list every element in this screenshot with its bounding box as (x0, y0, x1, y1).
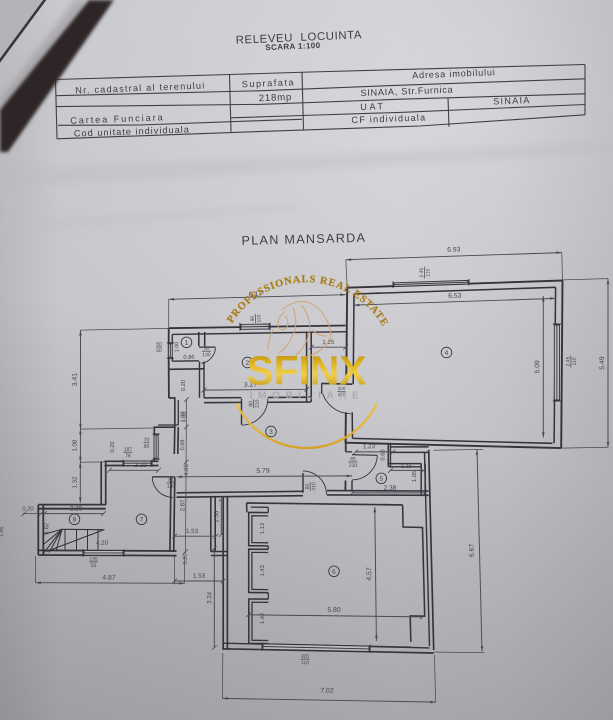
svg-text:76: 76 (125, 453, 131, 459)
svg-text:5.09: 5.09 (534, 360, 541, 374)
svg-text:218mp: 218mp (259, 92, 293, 104)
svg-text:0.68: 0.68 (380, 449, 386, 460)
svg-text:1.96: 1.96 (0, 527, 5, 538)
svg-text:110: 110 (301, 660, 309, 666)
svg-text:1.00: 1.00 (174, 342, 180, 353)
svg-text:5.80: 5.80 (327, 607, 341, 614)
svg-text:50: 50 (156, 348, 162, 354)
svg-text:1.00: 1.00 (180, 412, 186, 423)
svg-text:1.53: 1.53 (193, 573, 206, 580)
svg-text:210: 210 (311, 482, 317, 491)
svg-text:2.87: 2.87 (180, 499, 186, 511)
svg-text:Cod unitate individuala: Cod unitate individuala (74, 124, 190, 138)
svg-text:80: 80 (144, 444, 150, 450)
svg-text:55: 55 (91, 563, 97, 569)
svg-text:Suprafata: Suprafata (242, 77, 296, 89)
svg-text:130: 130 (202, 352, 211, 358)
svg-text:SINAIA: SINAIA (493, 95, 531, 106)
svg-text:0.20: 0.20 (22, 506, 33, 512)
svg-text:Adresa imobilului: Adresa imobilului (412, 67, 496, 80)
svg-text:SFINX: SFINX (247, 347, 367, 393)
svg-text:4.95: 4.95 (184, 463, 190, 475)
svg-text:6.53: 6.53 (448, 293, 462, 300)
svg-text:110: 110 (425, 268, 431, 276)
svg-text:8: 8 (73, 517, 77, 524)
svg-text:210: 210 (349, 463, 358, 469)
svg-text:2.19: 2.19 (134, 462, 147, 469)
svg-text:7: 7 (140, 517, 144, 524)
svg-text:1.43: 1.43 (260, 565, 266, 576)
svg-text:0.20: 0.20 (183, 553, 189, 564)
svg-text:110: 110 (256, 314, 262, 322)
svg-text:SCARA 1:100: SCARA 1:100 (265, 41, 321, 52)
svg-text:7.02: 7.02 (320, 687, 334, 694)
svg-text:3.24: 3.24 (206, 591, 213, 604)
svg-text:UAT: UAT (360, 101, 386, 112)
svg-text:1.32: 1.32 (72, 476, 79, 489)
svg-text:1.53: 1.53 (186, 528, 199, 535)
svg-text:0.88: 0.88 (180, 440, 186, 451)
svg-text:6: 6 (332, 569, 336, 576)
svg-text:5.79: 5.79 (256, 468, 269, 475)
svg-text:1.08: 1.08 (72, 439, 79, 452)
svg-text:1.50: 1.50 (213, 510, 220, 523)
svg-text:0.20: 0.20 (110, 441, 116, 452)
svg-text:2.28: 2.28 (70, 505, 83, 512)
svg-text:4.57: 4.57 (366, 567, 373, 580)
svg-text:IMOBILIARE: IMOBILIARE (250, 390, 365, 401)
svg-text:4.20: 4.20 (96, 540, 109, 547)
svg-text:4: 4 (445, 350, 449, 357)
svg-text:3.41: 3.41 (72, 373, 79, 387)
svg-text:CF individuala: CF individuala (351, 112, 426, 125)
svg-text:0.86: 0.86 (183, 355, 194, 361)
svg-text:1.23: 1.23 (363, 443, 376, 450)
svg-text:PLAN MANSARDA: PLAN MANSARDA (241, 231, 366, 248)
svg-text:1.15: 1.15 (401, 464, 412, 470)
svg-text:5.49: 5.49 (599, 356, 606, 370)
svg-text:1: 1 (185, 340, 189, 347)
svg-text:3: 3 (269, 429, 273, 436)
svg-text:Cartea Funciara: Cartea Funciara (70, 112, 165, 125)
svg-text:1.13: 1.13 (260, 523, 266, 534)
svg-text:110: 110 (572, 357, 578, 365)
svg-text:1.05: 1.05 (412, 471, 418, 482)
svg-text:6.93: 6.93 (447, 246, 461, 253)
svg-text:6.67: 6.67 (469, 544, 476, 557)
svg-text:4.87: 4.87 (102, 574, 115, 581)
svg-text:0.20: 0.20 (181, 380, 187, 391)
svg-text:5: 5 (379, 476, 383, 483)
svg-text:2.38: 2.38 (384, 485, 397, 492)
